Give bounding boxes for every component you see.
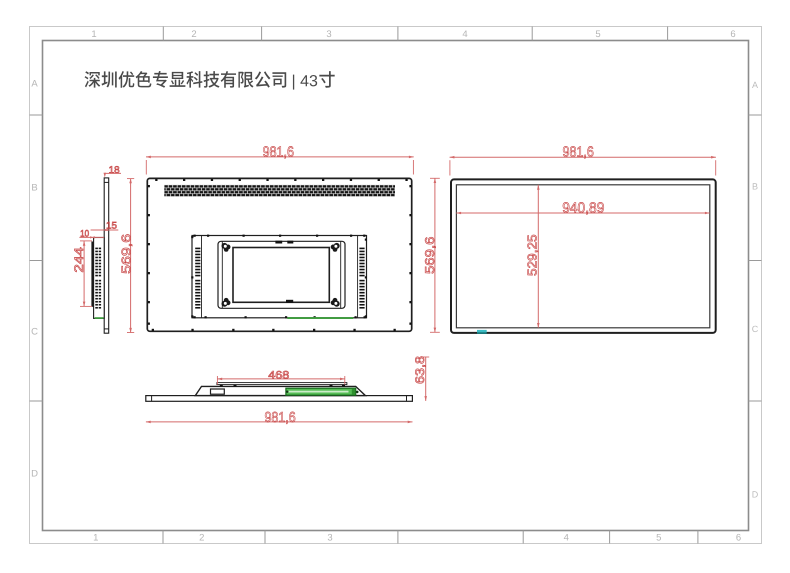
- svg-text:4: 4: [564, 533, 569, 544]
- svg-text:1: 1: [91, 29, 96, 40]
- svg-text:981,6: 981,6: [563, 145, 594, 161]
- svg-text:244: 244: [72, 247, 86, 273]
- svg-text:D: D: [31, 469, 38, 480]
- svg-text:B: B: [752, 182, 758, 192]
- svg-text:2: 2: [191, 29, 196, 40]
- svg-text:940,89: 940,89: [562, 201, 604, 217]
- svg-text:A: A: [31, 79, 38, 90]
- svg-text:3: 3: [327, 533, 332, 544]
- svg-text:5: 5: [595, 29, 600, 40]
- svg-text:2: 2: [199, 533, 204, 544]
- svg-text:B: B: [31, 183, 37, 194]
- svg-text:6: 6: [736, 533, 741, 544]
- svg-text:569,6: 569,6: [422, 237, 437, 274]
- svg-text:6: 6: [730, 29, 735, 40]
- svg-text:5: 5: [656, 533, 661, 544]
- svg-text:C: C: [31, 327, 38, 338]
- svg-text:981,6: 981,6: [264, 410, 295, 426]
- svg-text:1: 1: [93, 533, 98, 544]
- svg-text:18: 18: [109, 165, 121, 176]
- svg-text:569,6: 569,6: [118, 234, 133, 274]
- svg-text:63,8: 63,8: [413, 356, 427, 384]
- svg-text:3: 3: [326, 29, 331, 40]
- svg-text:529,25: 529,25: [524, 234, 539, 276]
- svg-text:981,6: 981,6: [263, 144, 294, 160]
- svg-text:D: D: [752, 490, 759, 500]
- svg-text:10: 10: [80, 228, 89, 238]
- svg-text:C: C: [752, 324, 759, 334]
- svg-text:A: A: [752, 80, 758, 90]
- svg-text:4: 4: [462, 29, 467, 40]
- svg-text:468: 468: [268, 369, 289, 381]
